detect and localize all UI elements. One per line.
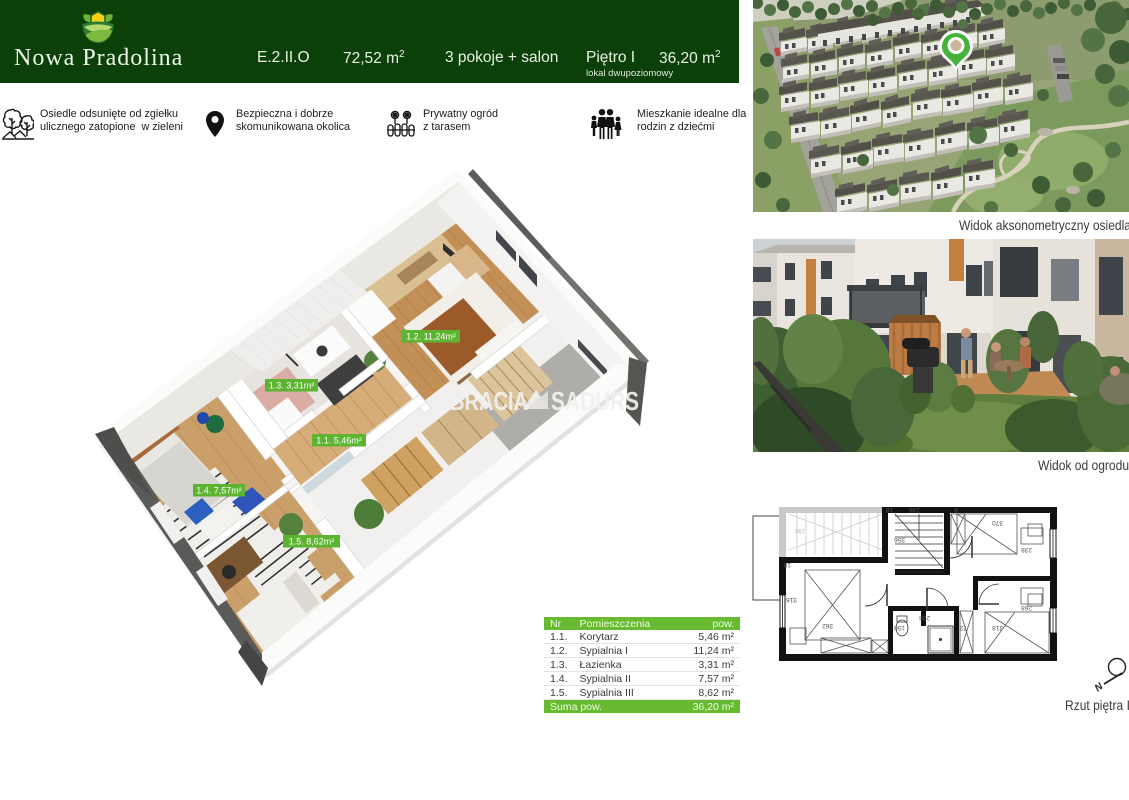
svg-text:72: 72: [959, 624, 967, 631]
svg-text:N: N: [1093, 681, 1106, 694]
svg-text:190: 190: [794, 527, 805, 533]
svg-text:150: 150: [894, 624, 905, 631]
svg-text:BRACIA: BRACIA: [450, 386, 528, 416]
svg-text:8: 8: [954, 506, 958, 513]
svg-text:318: 318: [992, 624, 1003, 631]
svg-text:1.1. 5,46m²: 1.1. 5,46m²: [316, 436, 362, 446]
svg-text:1.5. 8,62m²: 1.5. 8,62m²: [289, 537, 335, 547]
svg-text:362: 362: [822, 622, 833, 629]
svg-text:18: 18: [783, 561, 791, 568]
svg-text:316: 316: [786, 596, 797, 603]
svg-text:SADURS: SADURS: [551, 386, 639, 416]
svg-text:370: 370: [992, 519, 1003, 526]
svg-text:1.4. 7,57m²: 1.4. 7,57m²: [196, 486, 242, 496]
svg-text:18: 18: [885, 506, 893, 513]
svg-text:1.2. 11,24m²: 1.2. 11,24m²: [406, 332, 456, 342]
svg-text:1.3. 3,31m²: 1.3. 3,31m²: [269, 381, 315, 391]
svg-text:268: 268: [1021, 604, 1032, 611]
svg-text:186: 186: [909, 506, 920, 513]
svg-text:356: 356: [894, 536, 905, 543]
svg-text:238: 238: [1021, 546, 1032, 553]
svg-text:228: 228: [919, 614, 930, 621]
